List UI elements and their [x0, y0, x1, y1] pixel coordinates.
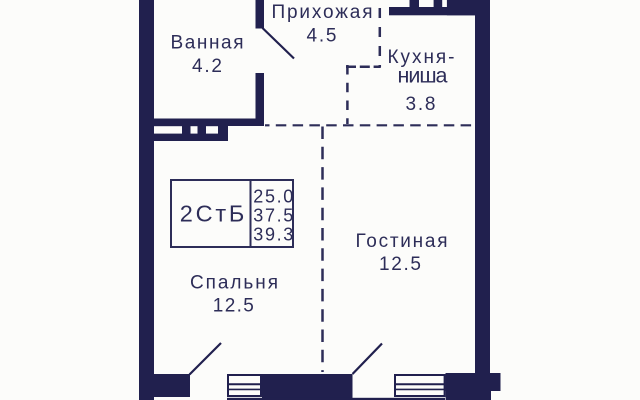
svg-text:2СтБ: 2СтБ: [180, 201, 245, 227]
svg-text:12.5: 12.5: [379, 254, 421, 275]
svg-text:Ванная: Ванная: [171, 32, 244, 53]
svg-text:Спальня: Спальня: [190, 272, 278, 293]
svg-text:ниша: ниша: [398, 64, 448, 88]
svg-text:4.5: 4.5: [307, 26, 337, 47]
svg-text:Гостиная: Гостиная: [356, 231, 448, 252]
svg-text:3.8: 3.8: [406, 94, 436, 115]
svg-text:37.5: 37.5: [253, 206, 293, 226]
svg-text:12.5: 12.5: [213, 295, 254, 316]
svg-text:25.0: 25.0: [253, 187, 293, 207]
svg-text:39.3: 39.3: [253, 225, 293, 245]
svg-text:4.2: 4.2: [192, 56, 222, 77]
